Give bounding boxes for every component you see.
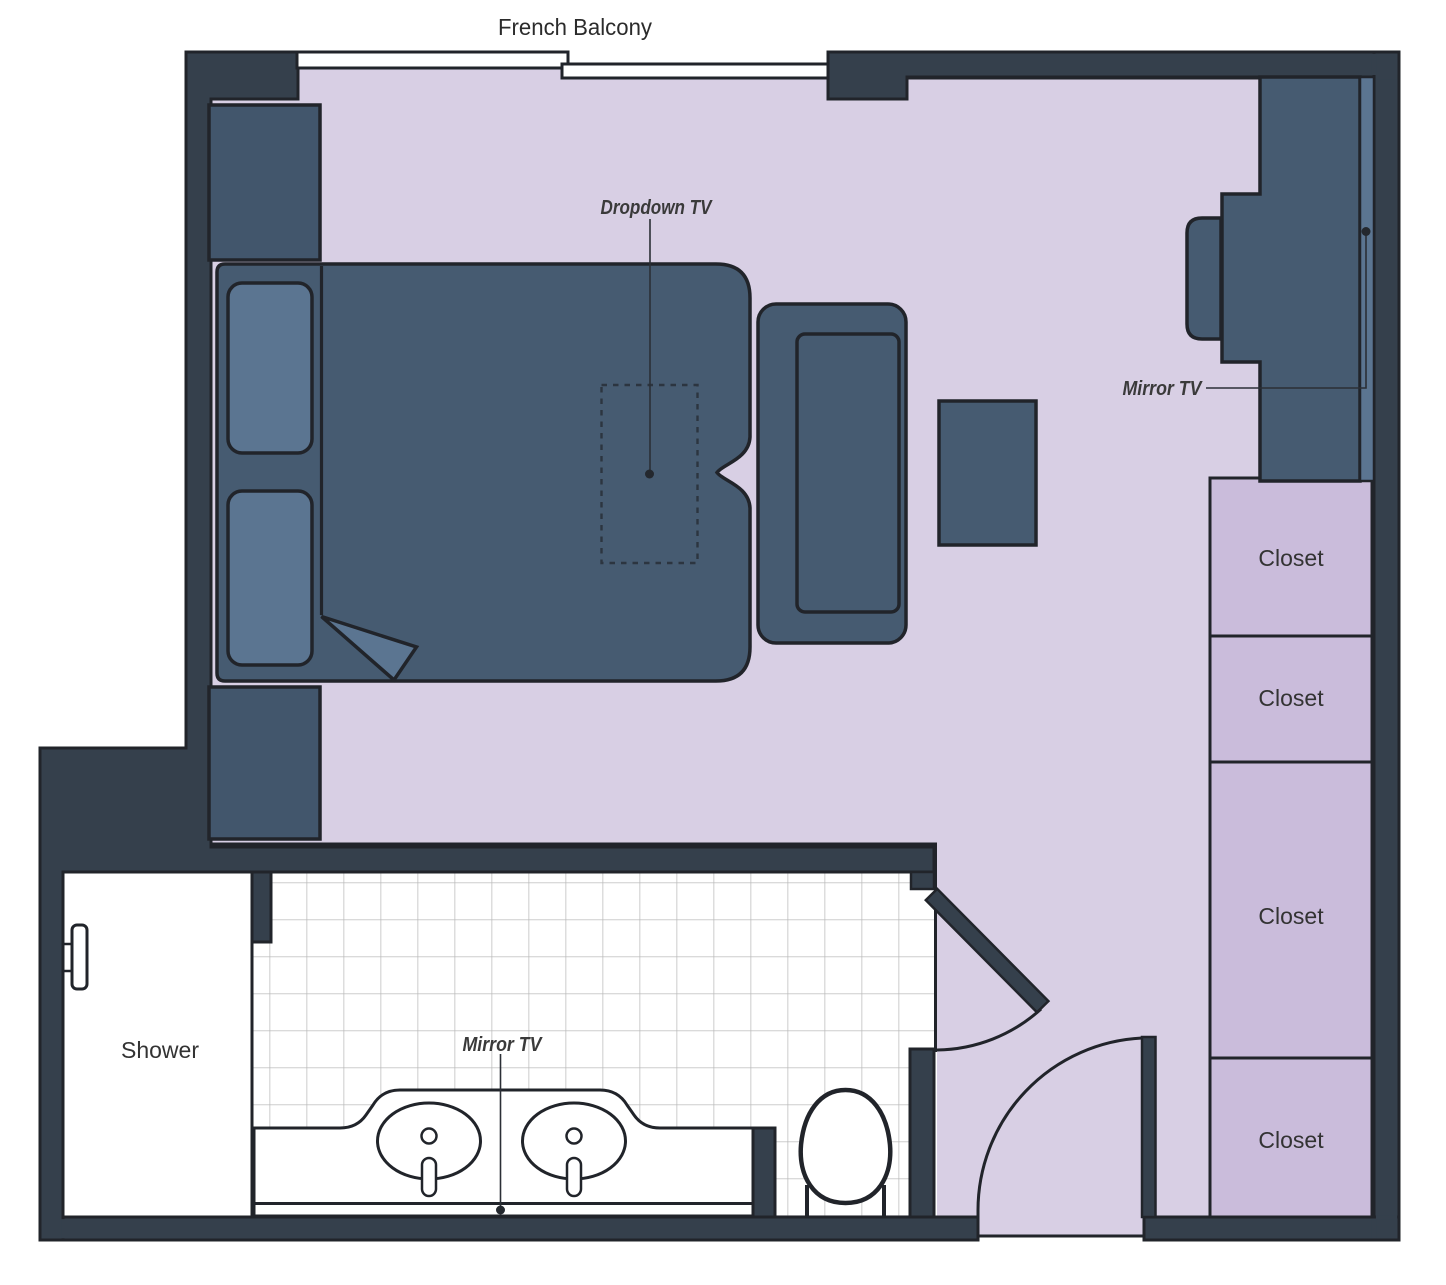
- svg-text:Mirror TV: Mirror TV: [463, 1034, 543, 1056]
- svg-text:Shower: Shower: [121, 1037, 199, 1063]
- svg-text:Closet: Closet: [1258, 903, 1324, 929]
- svg-text:Closet: Closet: [1258, 545, 1324, 571]
- svg-text:Mirror TV: Mirror TV: [1123, 378, 1203, 400]
- svg-text:Closet: Closet: [1258, 1127, 1324, 1153]
- svg-text:Dropdown TV: Dropdown TV: [601, 197, 713, 219]
- svg-text:Closet: Closet: [1258, 685, 1324, 711]
- svg-text:French Balcony: French Balcony: [498, 14, 652, 40]
